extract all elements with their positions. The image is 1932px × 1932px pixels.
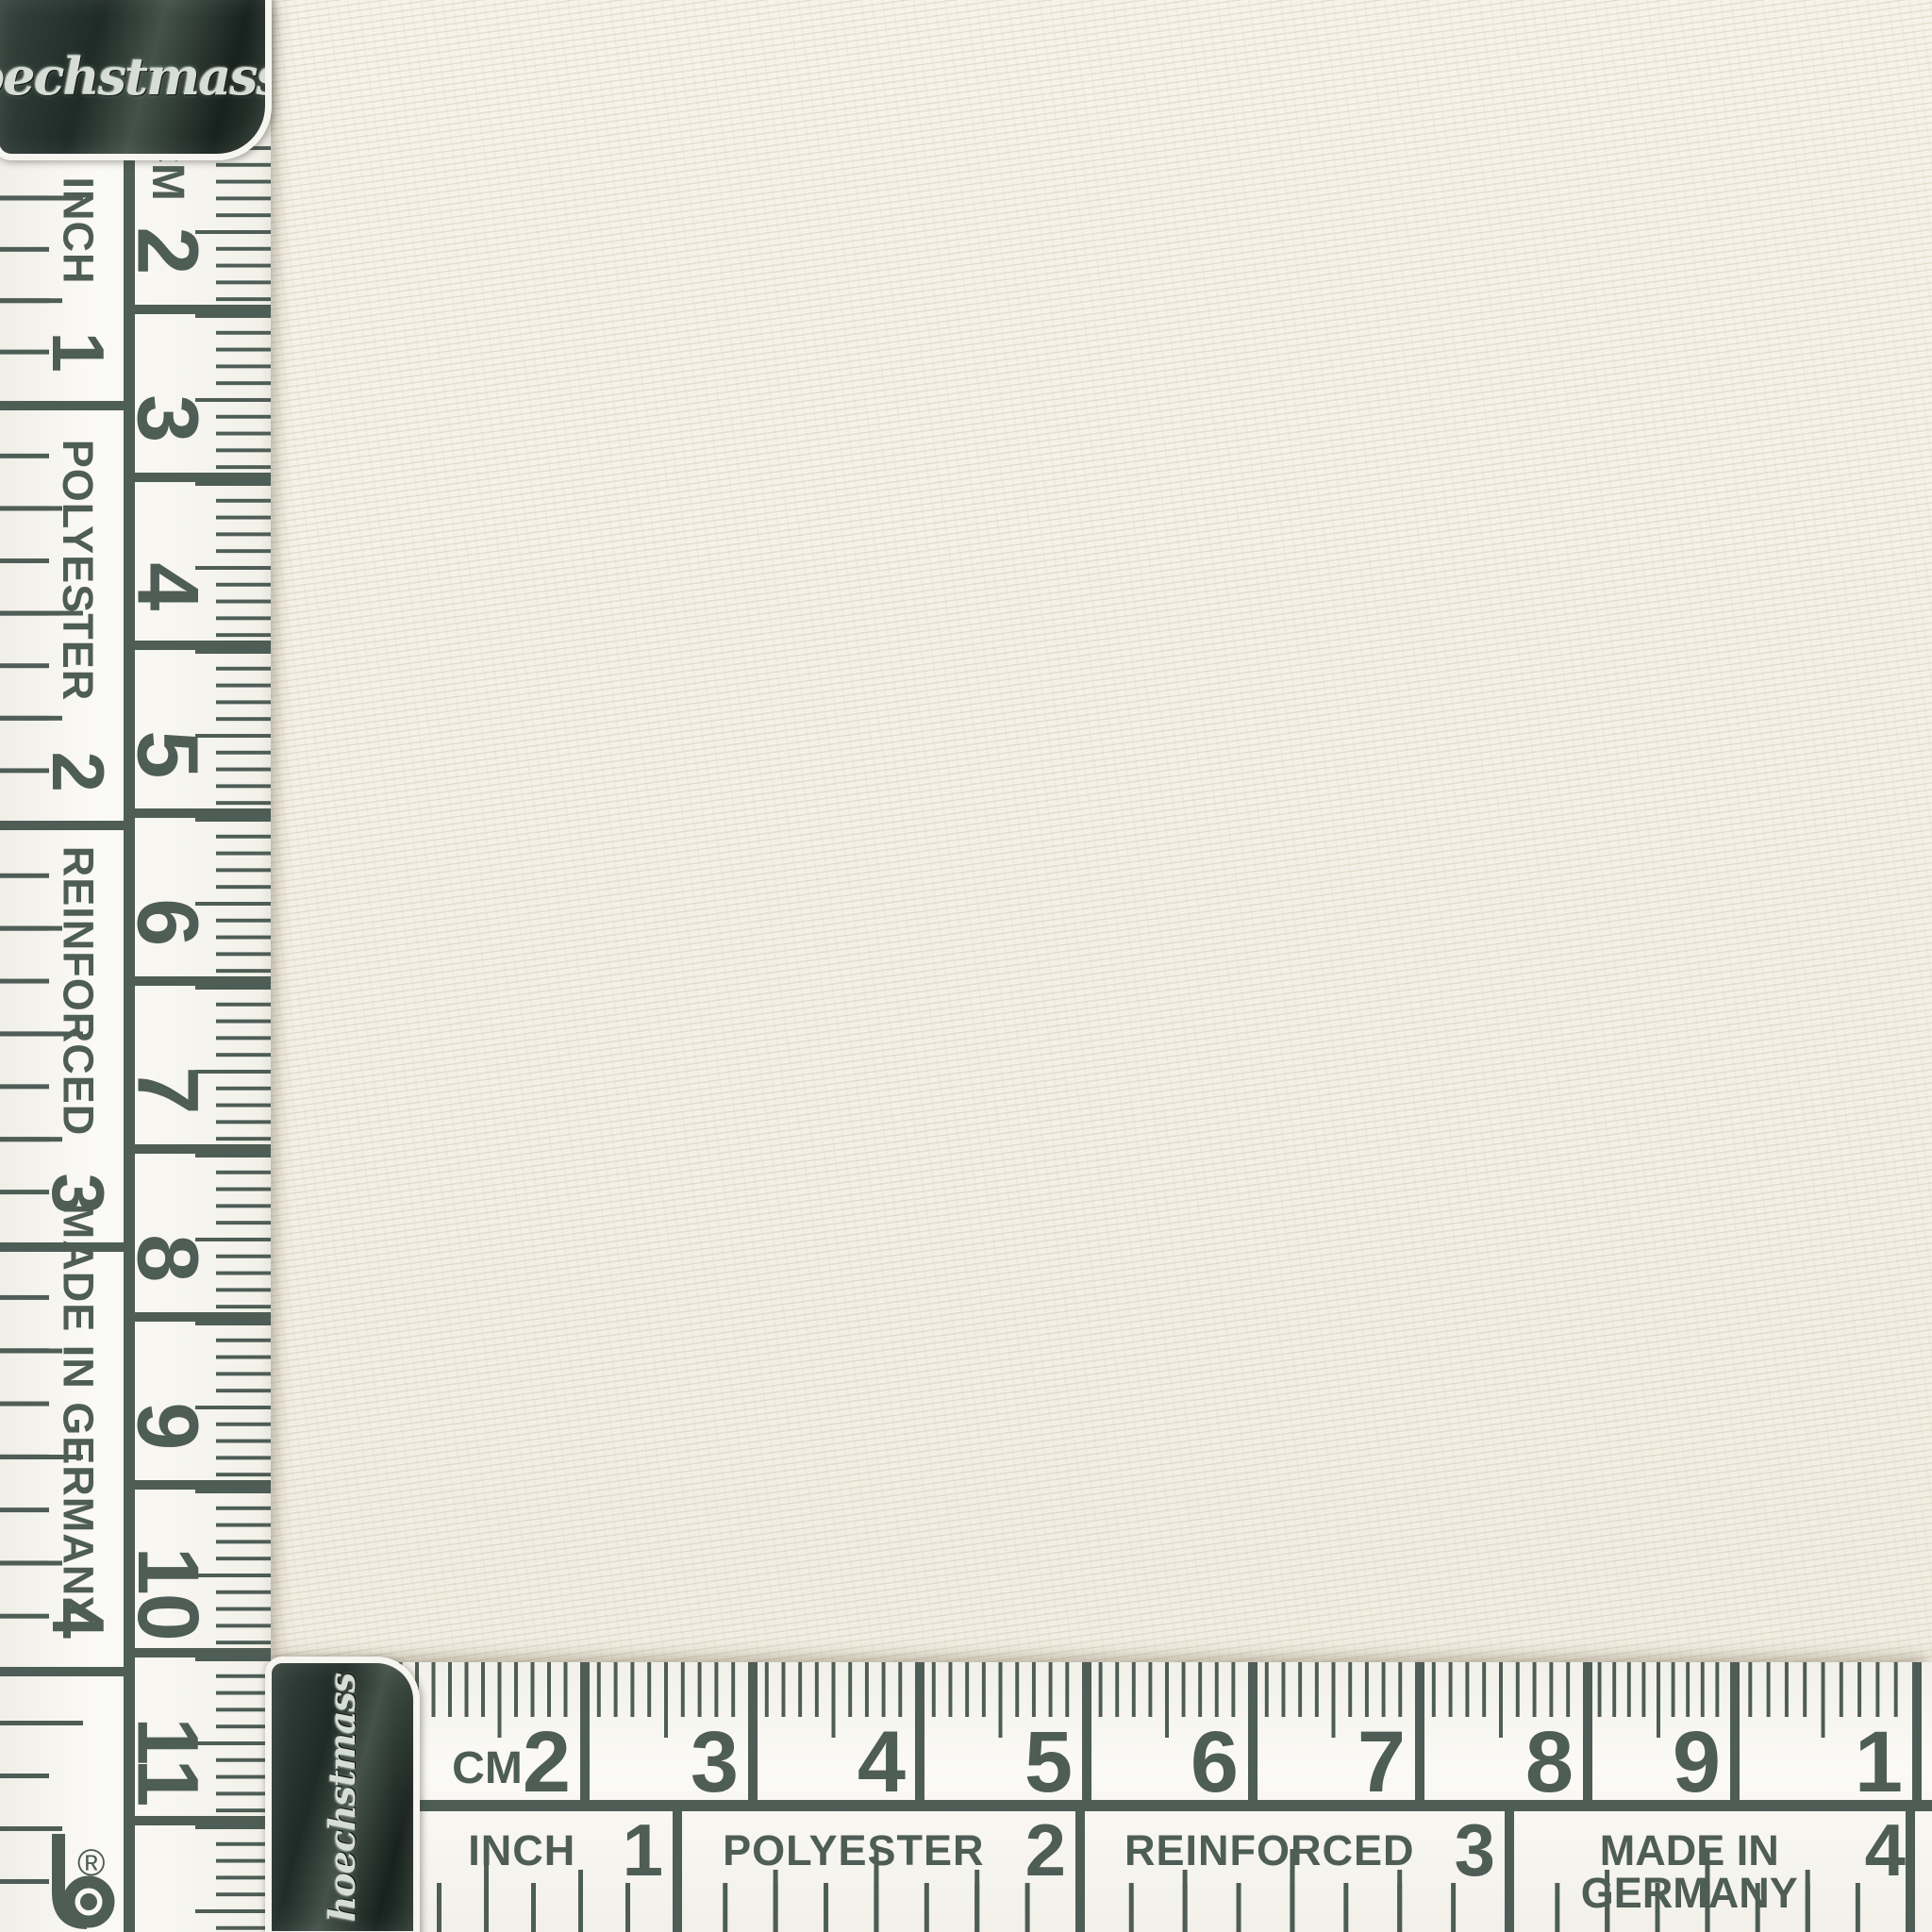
inch-number: 4 — [1865, 1821, 1904, 1879]
cm-cell: 6 — [1091, 1662, 1257, 1800]
brand-script: hoechstmass — [0, 46, 272, 107]
cm-cell: 6 — [135, 818, 271, 986]
cm-number: 8 — [132, 1234, 202, 1280]
cm-cell: 8 — [135, 1154, 271, 1322]
cm-cell: 9 — [135, 1322, 271, 1490]
inch-segment: REINFORCED 3 — [1085, 1811, 1514, 1932]
cm-number: 6 — [132, 898, 202, 944]
cm-cell: 3 — [590, 1662, 758, 1800]
inch-segment: REINFORCED 3 — [0, 830, 124, 1252]
inch-unit-label: INCH — [422, 1821, 623, 1872]
inch-segment-label: POLYESTER — [682, 1821, 1025, 1872]
inch-segment-label: MADE IN GERMANY — [1514, 1821, 1865, 1914]
photo-stage: INCH 1 POLYESTER 2 REINFORCED 3 MADE IN … — [0, 0, 1932, 1932]
cm-number: 9 — [1673, 1728, 1719, 1798]
end-clip: hoechstmass — [0, 0, 272, 160]
inch-segment-label: REINFORCED — [1085, 1821, 1455, 1872]
inch-segment-label: REINFORCED — [57, 846, 99, 1137]
inch-number: 2 — [48, 751, 107, 790]
inch-number: 1 — [48, 331, 107, 370]
cm-cell: 4 — [758, 1662, 924, 1800]
cm-number: 2 — [523, 1728, 569, 1798]
inch-segment-label: POLYESTER — [57, 440, 99, 701]
cm-cell: 10 — [135, 1490, 271, 1657]
brand-script: hoechstmass — [322, 1673, 364, 1921]
cm-number: 3 — [132, 394, 202, 441]
end-clip: hoechstmass — [265, 1657, 420, 1932]
scale-divider — [124, 0, 135, 1932]
cm-number: 6 — [1191, 1728, 1237, 1798]
cm-number: 7 — [1357, 1728, 1404, 1798]
cm-cell-partial — [135, 1825, 271, 1932]
cm-cell: 5 — [135, 650, 271, 818]
inch-segment: POLYESTER 2 — [0, 410, 124, 830]
cm-number: 9 — [132, 1402, 202, 1448]
cm-cell: 9 — [1592, 1662, 1740, 1800]
cm-cell: 7 — [1257, 1662, 1424, 1800]
inch-unit-label: INCH — [57, 177, 99, 285]
inch-number: 1 — [623, 1821, 661, 1879]
cm-cell: 4 — [135, 482, 271, 650]
cm-number: 5 — [1024, 1728, 1071, 1798]
vertical-tape-measure: INCH 1 POLYESTER 2 REINFORCED 3 MADE IN … — [0, 0, 271, 1932]
cm-number: 8 — [1525, 1728, 1572, 1798]
cm-number: 4 — [132, 562, 202, 608]
cm-number: 5 — [132, 730, 202, 776]
cm-cell: 1 — [1740, 1662, 1922, 1800]
cm-number: 2 — [132, 226, 202, 273]
cm-number: 10 — [132, 1547, 202, 1640]
registered-icon: ® — [77, 1842, 105, 1884]
inch-segment: MADE IN GERMANY 4 — [0, 1252, 124, 1676]
cm-number: 1 — [1855, 1728, 1901, 1798]
horizontal-tape-measure: CM2 3 4 5 6 7 8 9 1 INCH 1 — [271, 1662, 1932, 1932]
fabric-background — [0, 0, 1932, 1932]
cm-cell: 7 — [135, 986, 271, 1154]
inch-segment: MADE IN GERMANY 4 — [1514, 1811, 1915, 1932]
cm-cell: 3 — [135, 314, 271, 482]
cm-cell: 11 — [135, 1657, 271, 1825]
cm-number: 7 — [132, 1066, 202, 1112]
cm-number: 4 — [858, 1728, 904, 1798]
inch-segment-partial — [1915, 1811, 1932, 1932]
cm-unit-label: CM — [452, 1746, 523, 1798]
inch-number: 3 — [1455, 1821, 1493, 1879]
inch-segment-label: MADE IN GERMANY — [57, 1203, 99, 1625]
cm-cell-partial — [1922, 1662, 1932, 1800]
cm-cell: 5 — [924, 1662, 1091, 1800]
cm-number: 11 — [132, 1717, 202, 1805]
brand-logo: ® — [43, 1834, 115, 1932]
inch-number: 2 — [1025, 1821, 1064, 1879]
inch-segment: POLYESTER 2 — [682, 1811, 1085, 1932]
cm-cell: 8 — [1424, 1662, 1592, 1800]
inch-number: 4 — [48, 1597, 107, 1636]
cm-cell: CM 2 — [135, 146, 271, 314]
scale-divider — [271, 1800, 1932, 1811]
cm-number: 3 — [691, 1728, 737, 1798]
